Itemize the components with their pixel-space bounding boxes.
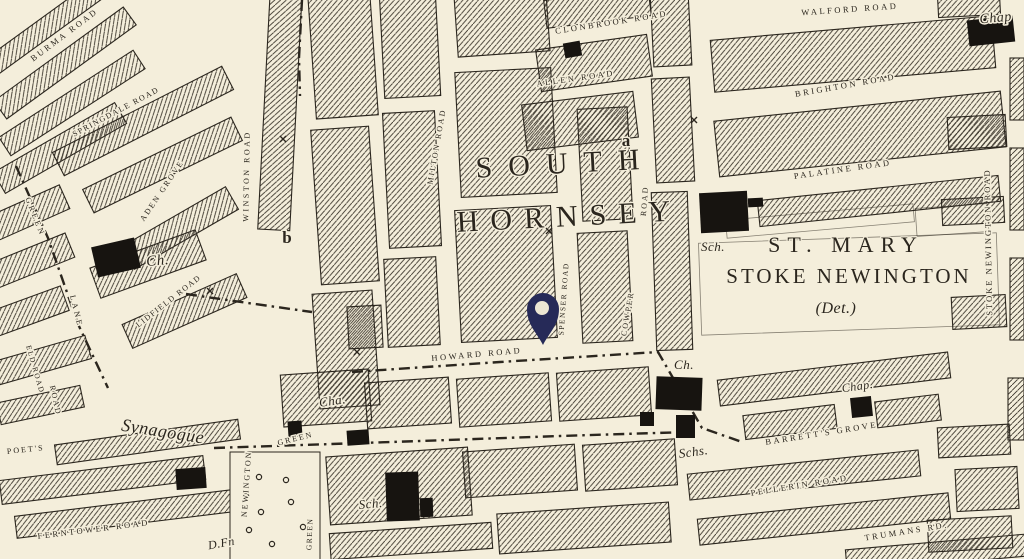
public-building <box>748 198 763 208</box>
city-block <box>556 367 651 421</box>
map-label-sch-36: Sch. <box>701 239 725 254</box>
city-block <box>875 394 942 428</box>
map-label-green-24: GREEN <box>304 518 314 551</box>
map-label-lane-13: LANE <box>68 294 85 329</box>
map-label-walford-road-2: WALFORD ROAD <box>801 1 899 18</box>
map-label-ch-35: Ch. <box>674 357 694 372</box>
city-block <box>941 196 1004 225</box>
public-building <box>676 415 695 438</box>
map-label-b-44: b <box>282 228 291 247</box>
map-label-chap-40: Chap <box>979 10 1013 28</box>
public-building <box>699 191 749 233</box>
public-building <box>420 498 434 517</box>
city-block <box>583 439 678 491</box>
map-label-sch-37: Sch. <box>358 495 383 512</box>
pin-hole <box>535 301 549 315</box>
city-block <box>497 502 671 554</box>
map-label-a-43: a <box>622 131 631 150</box>
city-block <box>0 286 69 336</box>
city-block <box>463 444 578 498</box>
city-block <box>308 0 379 119</box>
city-block <box>454 0 550 57</box>
city-block <box>347 305 383 349</box>
city-block <box>456 373 551 427</box>
city-block <box>697 493 950 545</box>
public-building <box>563 41 582 59</box>
historic-street-map: CLONBROOK ROADALLEN ROADWALFORD ROADBRIG… <box>0 0 1024 559</box>
public-building <box>385 471 420 521</box>
map-label-det-32: (Det.) <box>816 300 857 317</box>
city-block <box>0 335 91 384</box>
city-block <box>364 377 451 429</box>
map-label-st-mary-30: ST. MARY <box>768 232 924 257</box>
map-label-winston-road-10: WINSTON ROAD <box>241 130 252 222</box>
city-block <box>1010 258 1024 340</box>
public-building <box>850 396 873 418</box>
map-label-spenser-road-6: SPENSER ROAD <box>556 262 570 336</box>
city-block <box>52 66 233 175</box>
map-label-stoke-newington-31: STOKE NEWINGTON <box>726 264 971 288</box>
city-block <box>258 0 303 231</box>
city-block <box>947 115 1007 150</box>
city-block <box>687 450 920 500</box>
public-building <box>655 376 702 411</box>
city-block <box>379 0 440 98</box>
map-viewport[interactable]: CLONBROOK ROADALLEN ROADWALFORD ROADBRIG… <box>0 0 1024 559</box>
map-label-chap-41: Chap. <box>841 377 874 395</box>
map-label-poet-s-20: POET'S <box>6 443 45 456</box>
city-block <box>937 424 1010 458</box>
map-label-ch-34: Ch. <box>146 252 170 270</box>
city-block <box>384 257 441 348</box>
city-block <box>1010 148 1024 230</box>
public-building <box>175 467 206 490</box>
map-label-schs-38: Schs. <box>678 442 709 461</box>
city-block <box>651 77 694 183</box>
city-block <box>955 466 1019 511</box>
public-building <box>640 412 654 426</box>
city-block <box>1010 58 1024 120</box>
public-building <box>347 429 370 445</box>
map-label-hornsey-29: HORNSEY <box>456 194 683 239</box>
city-block <box>329 522 492 559</box>
city-block <box>311 126 380 285</box>
city-block <box>1008 378 1024 440</box>
